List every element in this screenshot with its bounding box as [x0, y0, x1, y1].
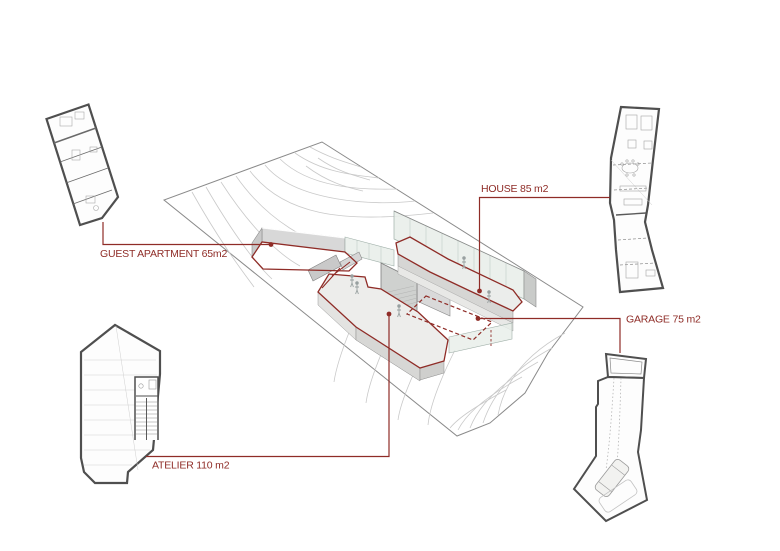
- callout-label-house: HOUSE 85 m2: [481, 183, 549, 195]
- anchor-dot: [476, 316, 481, 321]
- callout-label-guest-apartment: GUEST APARTMENT 65m2: [100, 248, 227, 260]
- diagram-canvas: GUEST APARTMENT 65m2 HOUSE 85 m2 GARAGE …: [0, 0, 780, 551]
- atelier-stair: [135, 377, 158, 440]
- garage-floor-plan: [574, 354, 647, 521]
- house-floor-plan: [610, 107, 663, 292]
- callout-label-garage: GARAGE 75 m2: [626, 314, 701, 326]
- anchor-dot: [387, 312, 392, 317]
- callout-label-atelier: ATELIER 110 m2: [152, 460, 230, 472]
- architectural-site-diagram: GUEST APARTMENT 65m2 HOUSE 85 m2 GARAGE …: [0, 0, 780, 551]
- guest-apartment-floor-plan: [47, 105, 119, 226]
- atelier-floor-plan: [81, 325, 160, 483]
- anchor-dot: [269, 242, 274, 247]
- anchor-dot: [477, 289, 482, 294]
